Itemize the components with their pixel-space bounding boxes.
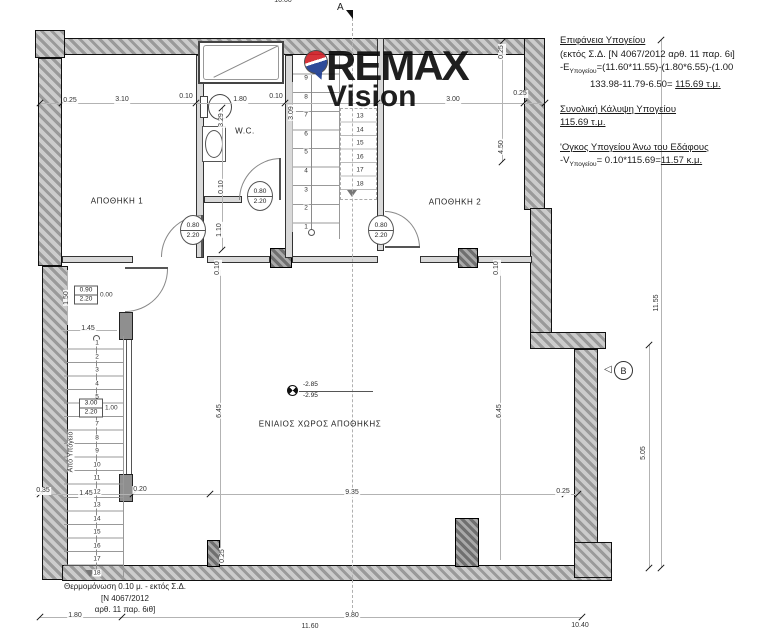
partition-wall bbox=[420, 256, 458, 263]
stair-number: 13 bbox=[92, 502, 101, 509]
toilet-tank bbox=[200, 96, 208, 118]
window-size-tag: 0.902.20 bbox=[74, 286, 98, 305]
stair-number: 8 bbox=[303, 94, 309, 101]
dimension-label: 0.20 bbox=[132, 486, 148, 494]
door-size-tag: 0.802.20 bbox=[368, 215, 394, 245]
section-a-arrow-icon bbox=[346, 10, 353, 19]
calc-text: 115.69 τ.μ. bbox=[675, 79, 721, 90]
calc-text: Συνολική Κάλυψη Υπογείου bbox=[560, 104, 676, 115]
wall-segment bbox=[574, 349, 598, 570]
level-upper-value: -2.85 bbox=[303, 381, 318, 388]
stair-number: 18 bbox=[92, 570, 101, 577]
partition-wall bbox=[478, 256, 532, 263]
stair-number: 12 bbox=[92, 489, 101, 496]
wall-segment bbox=[524, 38, 545, 210]
stair-number: 7 bbox=[94, 421, 100, 428]
door-leaf bbox=[125, 267, 168, 269]
stair-flight-label: Από Υπόγειο bbox=[68, 432, 75, 473]
dimension-label: 4.50 bbox=[498, 139, 506, 155]
dimension-label: 0.10 bbox=[214, 260, 222, 276]
dimension-line bbox=[35, 494, 578, 495]
section-b-triangle-icon: ◁ bbox=[604, 364, 612, 375]
partition-wall bbox=[204, 196, 242, 203]
stair-number: 16 bbox=[355, 154, 364, 161]
room-label: ΑΠΟΘΗΚΗ 2 bbox=[429, 198, 482, 207]
dimension-label: 1.10 bbox=[216, 222, 224, 238]
dimension-line bbox=[649, 345, 650, 568]
room-label: W.C. bbox=[235, 127, 255, 136]
calc-line: -EΥπογείου=(11.60*11.55)-(1.80*6.55)-(1.… bbox=[560, 61, 780, 78]
insulation-note-line: Θερμομόνωση 0.10 μ. - εκτός Σ.Δ. bbox=[45, 581, 205, 593]
dimension-tick bbox=[645, 564, 652, 571]
dimension-label: 1.80 bbox=[67, 612, 83, 620]
stair-number: 3 bbox=[94, 367, 100, 374]
dimension-label: 3.09 bbox=[288, 105, 296, 121]
window-size-tag: 3.002.20 bbox=[79, 399, 103, 418]
dimension-label: 0.10 bbox=[178, 93, 194, 101]
insulation-note: Θερμομόνωση 0.10 μ. - εκτός Σ.Δ. [Ν 4067… bbox=[45, 581, 205, 616]
window-height-value: 2.20 bbox=[75, 296, 97, 304]
door-leaf bbox=[385, 246, 420, 248]
stair-number: 14 bbox=[355, 127, 364, 134]
door-width-value: 0.80 bbox=[181, 216, 205, 231]
dimension-label: 0.25 bbox=[62, 97, 78, 105]
stair-number: 5 bbox=[303, 149, 309, 156]
dimension-label: 11.60 bbox=[301, 623, 320, 628]
door-leaf bbox=[279, 158, 281, 200]
partition-wall bbox=[62, 256, 133, 263]
calc-text: 133.98-11.79-6.50= bbox=[590, 79, 675, 90]
calc-text: 11.57 κ.μ. bbox=[661, 155, 702, 166]
stair-number: 17 bbox=[355, 167, 364, 174]
stair-number: 9 bbox=[303, 75, 309, 82]
door-swing-arc bbox=[125, 269, 168, 312]
wall-segment bbox=[35, 30, 65, 58]
dimension-tick bbox=[498, 158, 505, 165]
dimension-label: 6.45 bbox=[496, 403, 504, 419]
calc-text: 115.69 τ.μ. bbox=[560, 117, 606, 128]
dimension-label: 0.10 bbox=[493, 260, 501, 276]
dimension-tick bbox=[578, 613, 585, 620]
dimension-label: 0.10 bbox=[268, 93, 284, 101]
calc-text: Υπογείου bbox=[570, 68, 597, 75]
stair-number: 11 bbox=[93, 475, 102, 482]
calc-text: Υπογείου bbox=[570, 161, 597, 168]
stair-number: 18 bbox=[355, 181, 364, 188]
dimension-label: 1.50 bbox=[63, 290, 71, 306]
level-marker-icon bbox=[287, 385, 298, 396]
dimension-label: 9.80 bbox=[344, 612, 360, 620]
dimension-label: 5.05 bbox=[640, 445, 648, 461]
stair-number: 15 bbox=[92, 529, 101, 536]
logo-sub-text: Vision bbox=[327, 80, 416, 114]
level-lower-value: -2.95 bbox=[303, 392, 318, 399]
calc-text: 'Ογκος Υπογείου Άνω του Εδάφους bbox=[560, 142, 709, 153]
window-width-value: 0.90 bbox=[75, 287, 97, 296]
dimension-label: 11.55 bbox=[653, 294, 661, 313]
sink-basin bbox=[205, 130, 223, 158]
wall-segment bbox=[38, 58, 62, 266]
column-pier bbox=[455, 518, 479, 567]
dimension-tick bbox=[657, 564, 664, 571]
stair-number: 1 bbox=[94, 340, 100, 347]
calc-line: Συνολική Κάλυψη Υπογείου bbox=[560, 103, 780, 117]
dimension-label: 3.10 bbox=[114, 96, 130, 104]
stair-number: 9 bbox=[94, 448, 100, 455]
wall-segment bbox=[574, 542, 612, 578]
door-width-value: 0.80 bbox=[248, 182, 272, 197]
partition-wall bbox=[292, 256, 378, 263]
calc-line: 'Ογκος Υπογείου Άνω του Εδάφους bbox=[560, 141, 780, 155]
stair-centerline bbox=[96, 340, 97, 572]
wall-segment bbox=[530, 208, 552, 334]
section-a-label: A bbox=[337, 2, 344, 13]
window-height-value: 2.20 bbox=[80, 409, 102, 417]
window-sill-value: 1.00 bbox=[105, 405, 118, 412]
door-size-tag: 0.802.20 bbox=[180, 215, 206, 245]
door-size-tag: 0.802.20 bbox=[247, 181, 273, 211]
calc-text: (εκτός Σ.Δ. [Ν 4067/2012 αρθ. 11 παρ. 6ι… bbox=[560, 49, 735, 60]
calc-text: Επιφάνεια Υπογείου bbox=[560, 35, 645, 46]
stair-number: 2 bbox=[303, 205, 309, 212]
stair-number: 4 bbox=[303, 168, 309, 175]
dimension-label: 3.00 bbox=[445, 96, 461, 104]
wall-segment bbox=[530, 332, 606, 349]
insulation-note-line: [Ν 4067/2012 bbox=[45, 593, 205, 605]
calc-line: -VΥπογείου= 0.10*115.69=11.57 κ.μ. bbox=[560, 154, 780, 171]
room-label: ΕΝΙΑΙΟΣ ΧΩΡΟΣ ΑΠΟΘΗΚΗΣ bbox=[259, 420, 381, 429]
dimension-label: 10.40 bbox=[570, 622, 590, 628]
stair-number: 3 bbox=[303, 187, 309, 194]
stair-number: 8 bbox=[94, 435, 100, 442]
door-height-value: 2.20 bbox=[248, 197, 272, 211]
calc-line: Επιφάνεια Υπογείου bbox=[560, 34, 780, 48]
stair-number: 14 bbox=[92, 516, 101, 523]
stair-number: 1 bbox=[303, 224, 309, 231]
calc-line: 115.69 τ.μ. bbox=[560, 116, 780, 130]
stair-number: 6 bbox=[303, 131, 309, 138]
dimension-label: 0.25 bbox=[555, 488, 571, 496]
stair-number: 10 bbox=[92, 462, 101, 469]
door-height-value: 2.20 bbox=[181, 231, 205, 245]
calc-text: -E bbox=[560, 62, 570, 73]
section-b-marker: B bbox=[614, 361, 633, 380]
dimension-label: 0.10 bbox=[218, 179, 226, 195]
stair-number: 17 bbox=[92, 556, 101, 563]
calc-text: =(11.60*11.55)-(1.80*6.55)-(1.00 bbox=[597, 62, 734, 73]
dimension-label: 9.35 bbox=[344, 489, 360, 497]
dimension-label: 3.29 bbox=[218, 112, 226, 128]
wall-segment bbox=[62, 38, 545, 55]
door-width-value: 0.80 bbox=[369, 216, 393, 231]
dimension-label: 0.35 bbox=[35, 487, 51, 495]
room-label: ΑΠΟΘΗΚΗ 1 bbox=[91, 197, 144, 206]
calc-text: = 0.10*115.69= bbox=[597, 155, 661, 166]
stair-number: 16 bbox=[92, 543, 101, 550]
stair-number: 2 bbox=[94, 354, 100, 361]
dimension-label: 1.80 bbox=[232, 96, 248, 104]
floor-plan-canvas: REMAX Vision Επιφάνεια Υπογείου(εκτός Σ.… bbox=[0, 0, 780, 628]
window-sill-value: 0.00 bbox=[100, 292, 113, 299]
dimension-label: 0.25 bbox=[512, 90, 528, 98]
dimension-label: 1.45 bbox=[80, 325, 96, 333]
calc-line: (εκτός Σ.Δ. [Ν 4067/2012 αρθ. 11 παρ. 6ι… bbox=[560, 48, 780, 62]
window-width-value: 3.00 bbox=[80, 400, 102, 409]
dimension-label: 0.25 bbox=[219, 548, 227, 564]
door-height-value: 2.20 bbox=[369, 231, 393, 245]
wall-segment bbox=[62, 565, 612, 581]
stair-centerline bbox=[311, 75, 312, 233]
calc-line: 133.98-11.79-6.50= 115.69 τ.μ. bbox=[560, 78, 780, 92]
stair-start-circle bbox=[308, 229, 315, 236]
stair-number: 7 bbox=[303, 112, 309, 119]
dimension-tick bbox=[218, 246, 225, 253]
column-pier bbox=[458, 248, 478, 268]
dimension-label: 6.45 bbox=[216, 403, 224, 419]
stair-number: 15 bbox=[355, 140, 364, 147]
calc-text: -V bbox=[560, 155, 570, 166]
dimension-label: 10.00 bbox=[273, 0, 293, 5]
area-calculations: Επιφάνεια Υπογείου(εκτός Σ.Δ. [Ν 4067/20… bbox=[560, 34, 780, 172]
stair-number: 4 bbox=[94, 381, 100, 388]
dimension-label: 0.25 bbox=[498, 44, 506, 60]
